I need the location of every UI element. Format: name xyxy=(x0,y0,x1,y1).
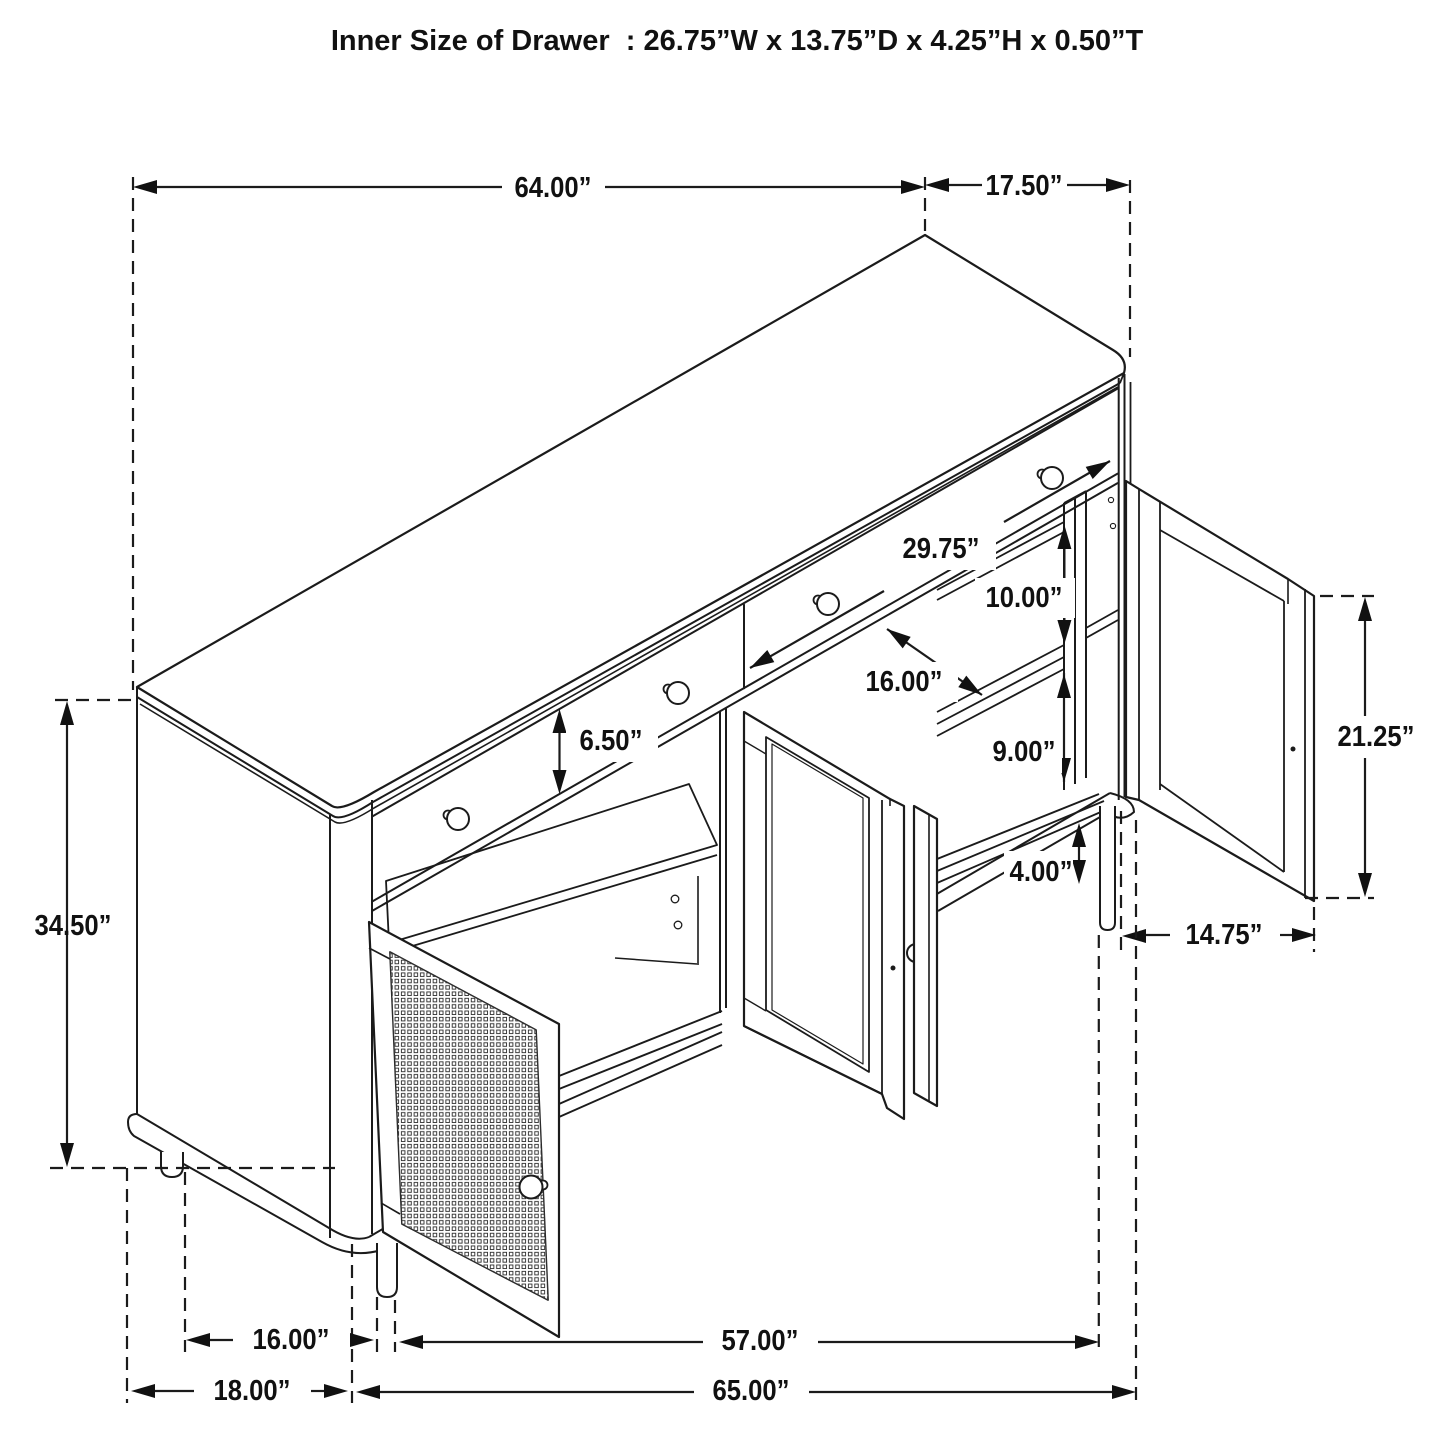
svg-text:10.00”: 10.00” xyxy=(986,582,1063,614)
svg-text:57.00”: 57.00” xyxy=(722,1325,799,1357)
svg-text:9.00”: 9.00” xyxy=(993,736,1056,768)
svg-text:16.00”: 16.00” xyxy=(866,666,943,698)
svg-text:17.50”: 17.50” xyxy=(986,170,1063,202)
svg-text:16.00”: 16.00” xyxy=(253,1324,330,1356)
svg-text:4.00”: 4.00” xyxy=(1010,856,1073,888)
svg-text:18.00”: 18.00” xyxy=(214,1375,291,1407)
svg-text:64.00”: 64.00” xyxy=(515,172,592,204)
svg-text:29.75”: 29.75” xyxy=(903,533,980,565)
svg-text:65.00”: 65.00” xyxy=(713,1375,790,1407)
svg-text:6.50”: 6.50” xyxy=(580,725,643,757)
svg-text:Inner Size of Drawer : 26.75”: Inner Size of Drawer : 26.75”W x 13.75”D… xyxy=(331,25,1144,57)
svg-text:14.75”: 14.75” xyxy=(1186,919,1263,951)
svg-text:34.50”: 34.50” xyxy=(35,910,112,942)
svg-text:21.25”: 21.25” xyxy=(1338,721,1415,753)
